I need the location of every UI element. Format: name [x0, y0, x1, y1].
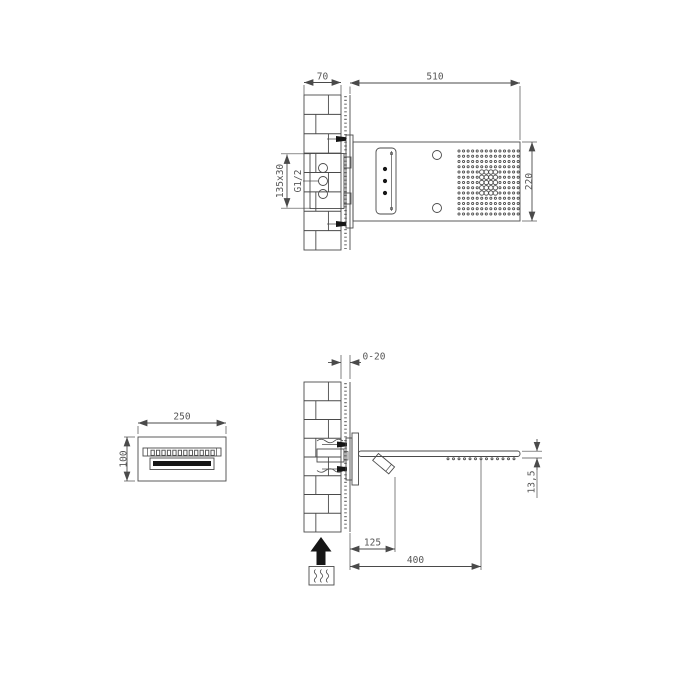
dim-label-front-height: 100 — [119, 450, 130, 467]
water-flow-icon — [309, 567, 334, 586]
dim-label-spout-offset: 125 — [364, 538, 381, 549]
technical-drawing-page: 70 510 G1/2 — [0, 0, 700, 700]
mounting-bracket-top — [327, 135, 353, 228]
anchor-screw-top — [336, 136, 346, 142]
rain-nozzle-grid — [458, 150, 519, 215]
waterfall-grille — [143, 448, 221, 470]
top-view: 70 510 G1/2 — [275, 72, 537, 251]
dim-label-tile-range: 0-20 — [363, 352, 386, 363]
wall-screw-upper — [337, 442, 347, 448]
waterfall-slot — [153, 461, 211, 466]
shower-installation-drawing: 70 510 G1/2 — [0, 0, 700, 700]
thread-label: G1/2 — [293, 170, 304, 193]
dim-wall-depth: 70 — [304, 72, 341, 95]
wall-section-side — [304, 382, 350, 532]
dim-label-length: 510 — [426, 72, 443, 83]
waterfall-housing-top — [376, 148, 396, 214]
dim-label-plate-thickness: 13,5 — [527, 471, 538, 494]
dim-width: 220 — [522, 142, 537, 221]
dim-label-front-width: 250 — [173, 412, 190, 423]
valve-side — [317, 439, 348, 472]
dim-front-height: 100 — [119, 437, 136, 481]
dim-arm-reach: 400 — [350, 555, 481, 567]
dim-spout-offset: 125 — [350, 538, 395, 550]
shower-arm-plate — [359, 451, 521, 457]
front-view: 250 100 — [119, 412, 227, 482]
up-arrow-icon — [311, 537, 332, 565]
waterfall-front-body — [138, 437, 226, 481]
wall-section-top — [304, 95, 350, 250]
screw-hole-top — [433, 151, 442, 160]
valve-box — [303, 154, 351, 209]
dim-label-valve-box: 135x30 — [275, 164, 286, 199]
side-nozzle-dots — [447, 458, 515, 460]
dim-plate-thickness: 13,5 — [522, 439, 542, 498]
dim-tile-range: 0-20 — [328, 352, 386, 380]
dim-length: 510 — [350, 72, 520, 141]
dim-label-width: 220 — [524, 173, 535, 190]
side-view: 0-20 — [304, 352, 542, 586]
dim-front-width: 250 — [138, 412, 226, 435]
dim-label-wall-depth: 70 — [317, 72, 329, 83]
dim-label-arm-reach: 400 — [407, 555, 424, 566]
screw-hole-bottom — [433, 204, 442, 213]
